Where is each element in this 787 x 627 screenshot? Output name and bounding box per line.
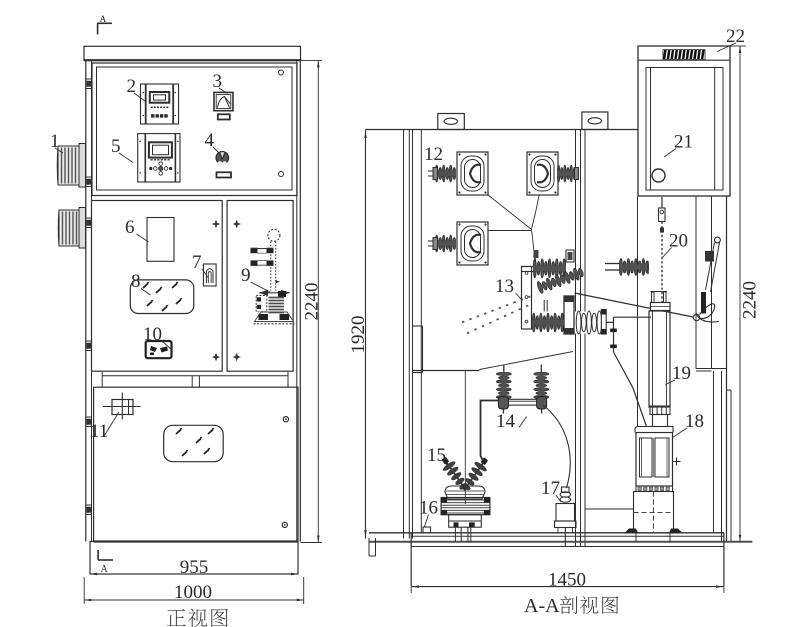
svg-text:A: A bbox=[100, 15, 107, 25]
svg-text:1000: 1000 bbox=[174, 582, 212, 603]
svg-text:9: 9 bbox=[241, 265, 251, 286]
svg-text:13: 13 bbox=[495, 276, 514, 297]
svg-text:1450: 1450 bbox=[548, 570, 586, 591]
svg-text:19: 19 bbox=[672, 363, 691, 384]
svg-text:11: 11 bbox=[90, 421, 108, 442]
svg-text:12: 12 bbox=[424, 144, 443, 165]
svg-text:2240: 2240 bbox=[302, 283, 323, 321]
svg-text:2240: 2240 bbox=[740, 281, 761, 319]
svg-text:A: A bbox=[101, 564, 109, 575]
svg-text:8: 8 bbox=[131, 271, 141, 292]
svg-text:7: 7 bbox=[192, 252, 202, 273]
svg-text:A-A: A-A bbox=[524, 595, 560, 617]
svg-text:14: 14 bbox=[496, 411, 516, 432]
svg-text:955: 955 bbox=[180, 557, 209, 578]
svg-text:22: 22 bbox=[726, 26, 745, 47]
svg-text:5: 5 bbox=[111, 136, 121, 157]
svg-text:10: 10 bbox=[143, 324, 162, 345]
svg-text:18: 18 bbox=[685, 411, 704, 432]
svg-text:20: 20 bbox=[669, 231, 688, 252]
svg-text:21: 21 bbox=[674, 132, 693, 153]
svg-text:1920: 1920 bbox=[348, 316, 369, 354]
svg-text:6: 6 bbox=[125, 217, 135, 238]
svg-text:4: 4 bbox=[205, 130, 215, 151]
svg-text:1: 1 bbox=[50, 131, 60, 152]
svg-text:15: 15 bbox=[427, 445, 446, 466]
